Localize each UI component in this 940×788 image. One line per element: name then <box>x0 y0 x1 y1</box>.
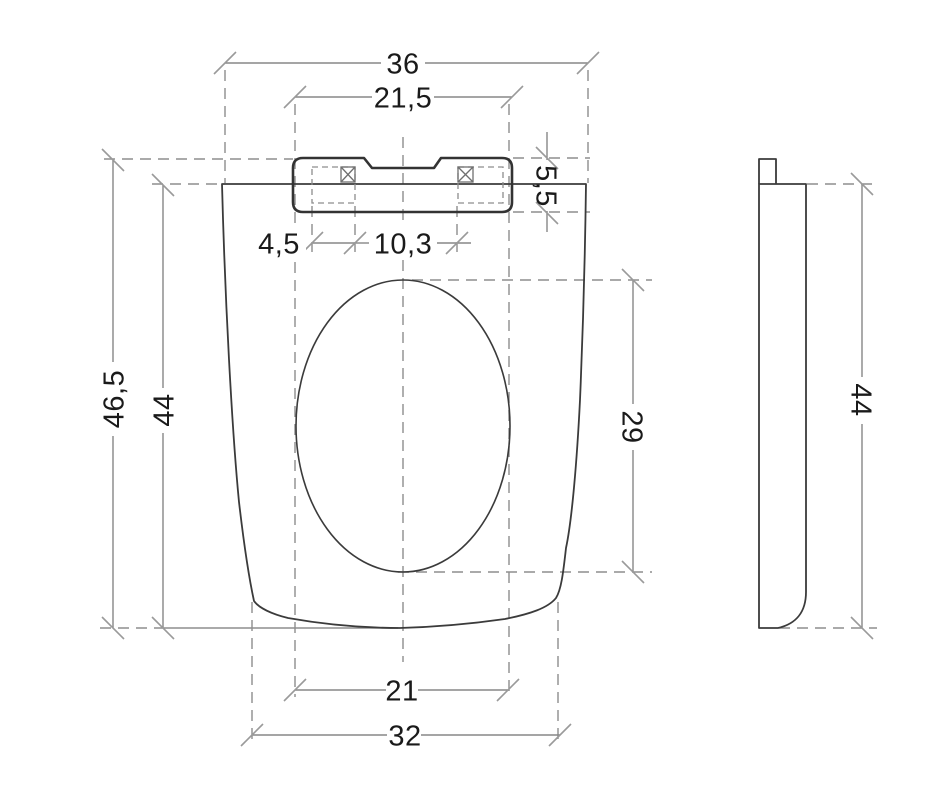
dim-side-height-label: 44 <box>845 383 877 416</box>
dim-hinge-depth-label: 5,5 <box>530 165 562 207</box>
technical-drawing-canvas: 36 21,5 4,5 10,3 21 32 46,5 44 5,5 29 44 <box>0 0 940 788</box>
fixing-plate-right <box>458 167 503 203</box>
toilet-seat-drawing: 36 21,5 4,5 10,3 21 32 46,5 44 5,5 29 44 <box>0 0 940 788</box>
hinge-bar <box>293 158 512 212</box>
fixing-plate-left <box>312 167 355 203</box>
dim-bottom-width-label: 32 <box>388 720 421 752</box>
dim-cutout-length-label: 29 <box>616 410 648 443</box>
dim-overall-width-label: 36 <box>386 48 419 80</box>
hinge-fixing-plates <box>312 167 503 203</box>
dim-fixing-width-label: 4,5 <box>258 228 300 260</box>
extension-lines <box>100 70 877 742</box>
side-hinge-tab <box>759 159 776 184</box>
side-view <box>759 159 806 628</box>
dim-overall-depth-label: 46,5 <box>98 370 130 428</box>
dim-hinge-width-label: 21,5 <box>374 82 432 114</box>
dim-fixing-spacing-label: 10,3 <box>374 228 432 260</box>
dimension-ticks <box>102 52 873 746</box>
dim-cutout-width-label: 21 <box>385 675 418 707</box>
dim-seat-depth-label: 44 <box>148 393 180 426</box>
side-profile <box>759 184 806 628</box>
